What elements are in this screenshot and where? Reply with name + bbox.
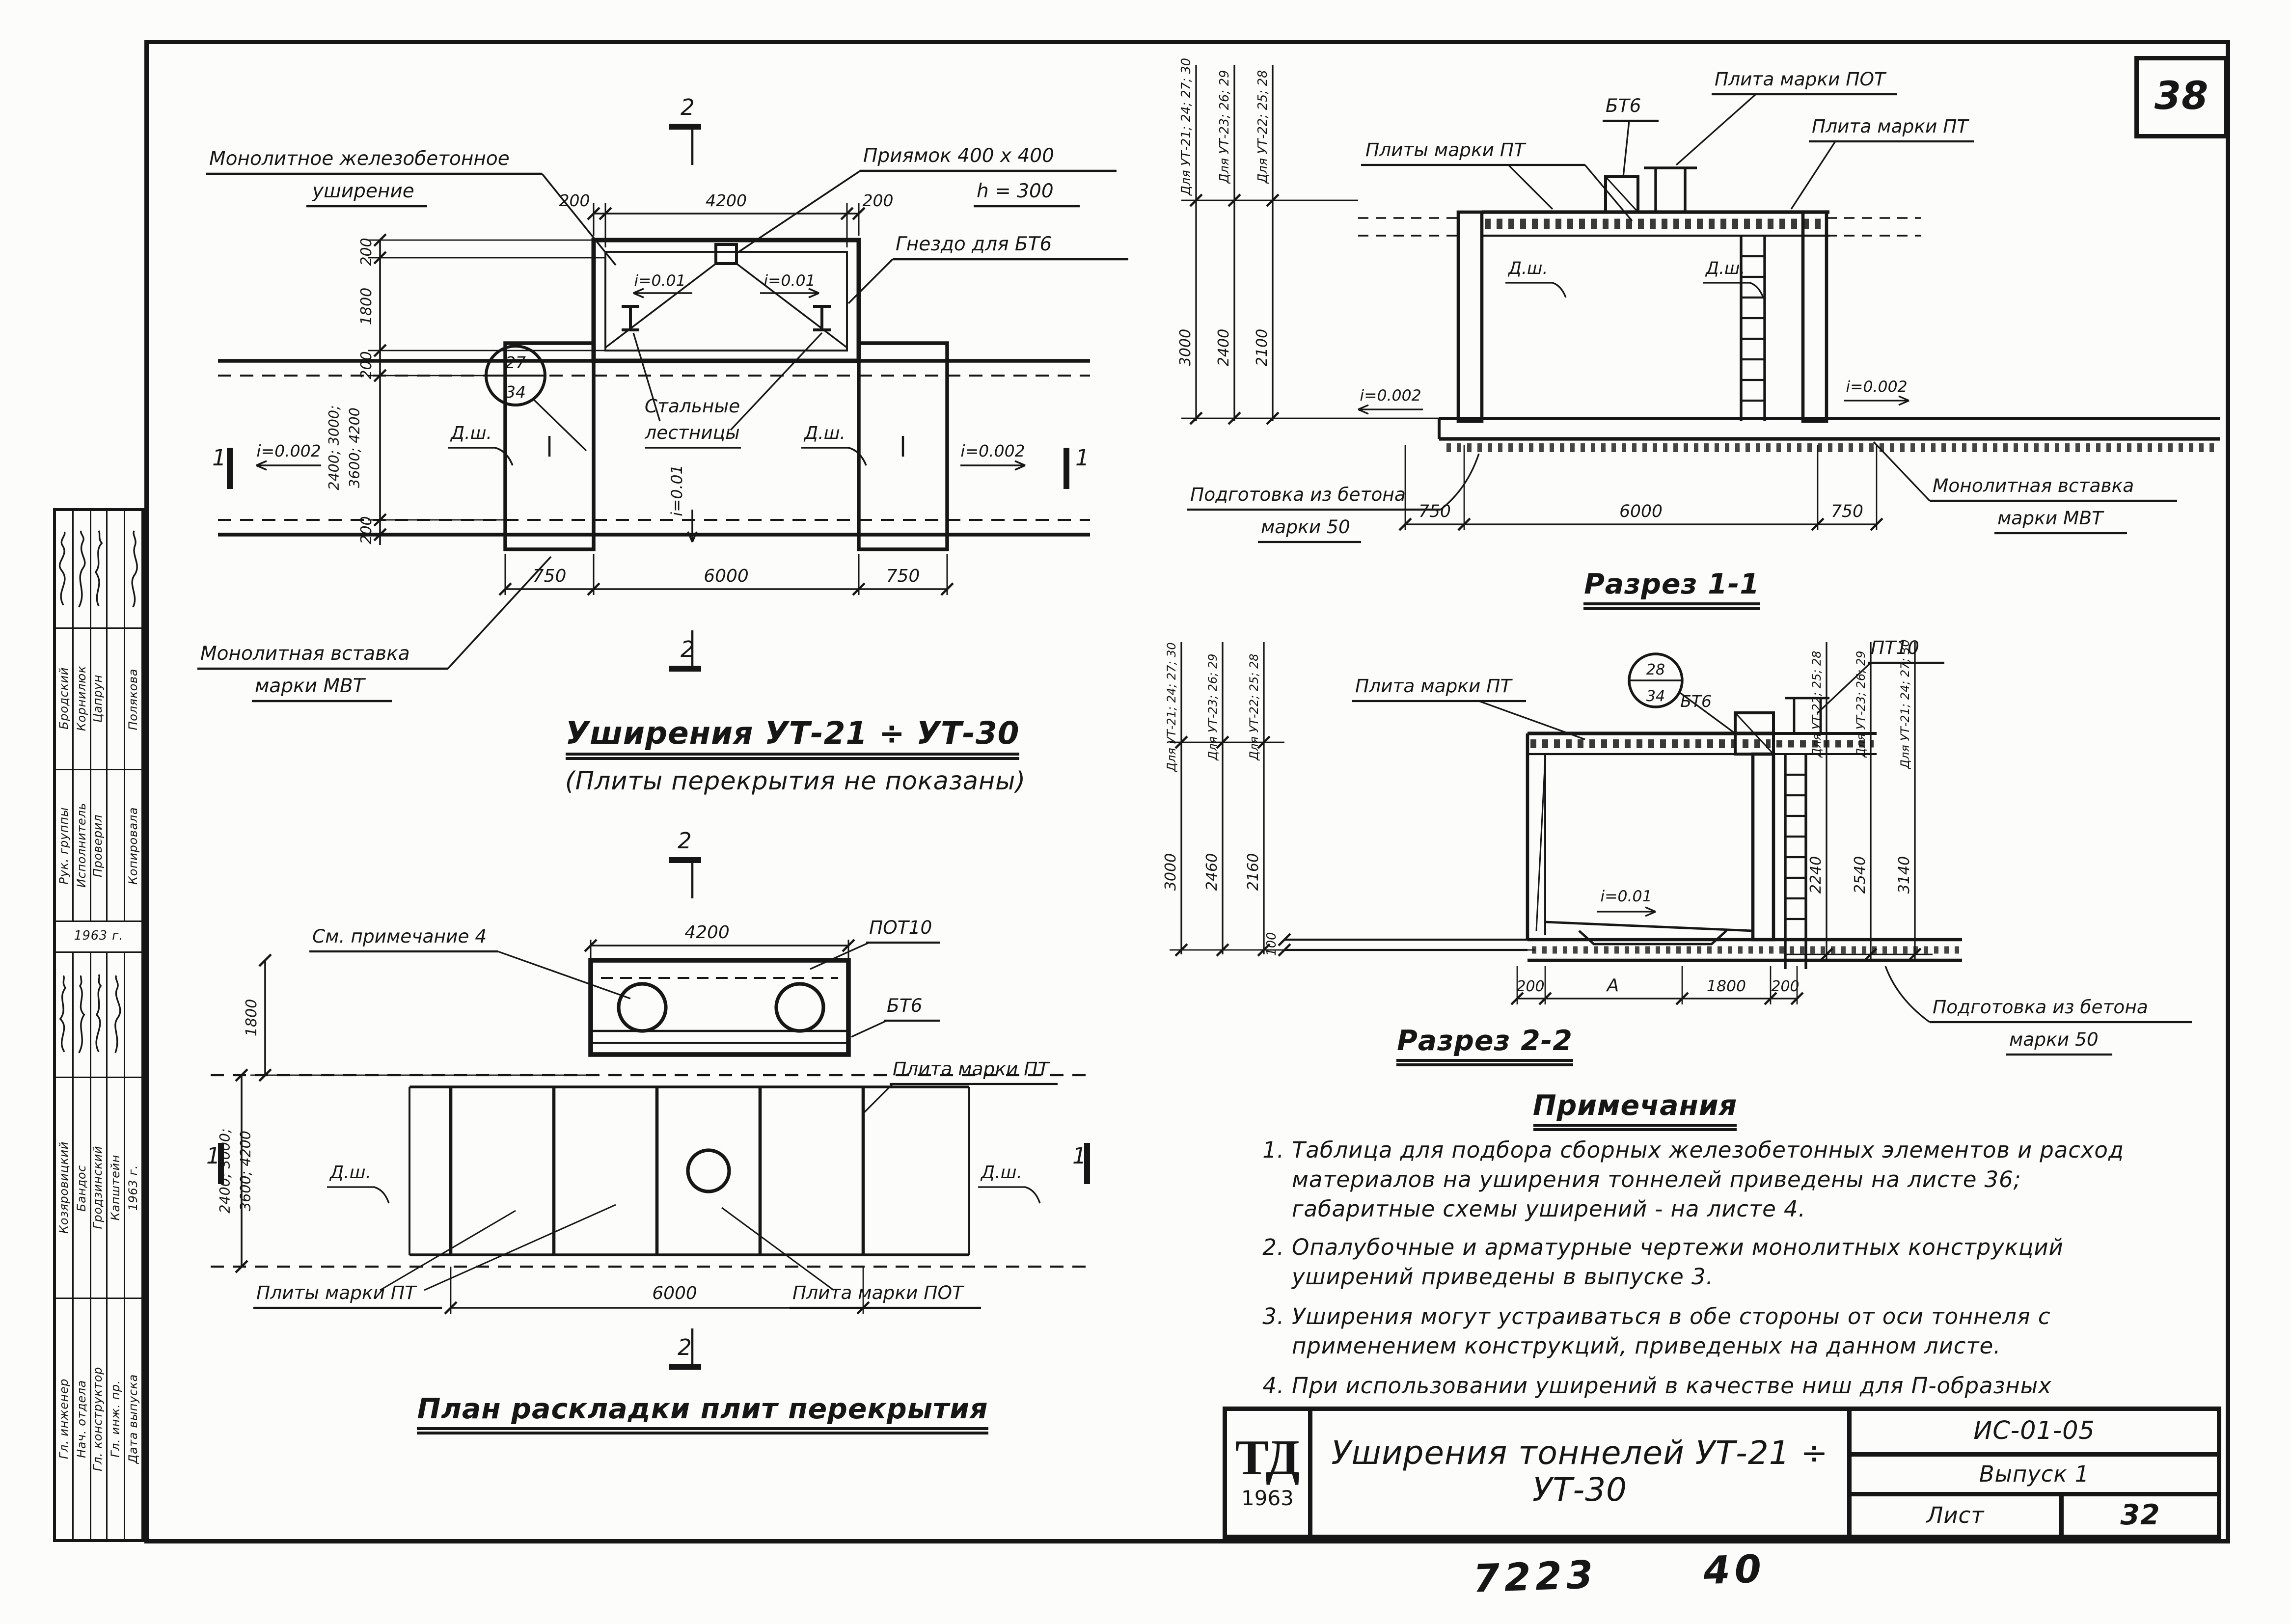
dim-1800: 1800 <box>243 999 260 1036</box>
slope-label: i=0.01 <box>764 272 815 290</box>
dim-left: 200 <box>358 351 375 379</box>
titleblock-title: Уширения тоннелей УТ-21 ÷ УТ-30 <box>1312 1411 1852 1535</box>
detail-circle-bottom: 34 <box>1646 688 1665 705</box>
dim-A: А <box>1606 975 1619 996</box>
label-plita-pt: Плита марки ПТ <box>893 1058 1050 1080</box>
dim-height: 2460 <box>1203 853 1221 891</box>
section-mark-2: 2 <box>678 828 692 854</box>
type-label: Для УТ-22; 25; 28 <box>1255 70 1270 184</box>
dim-height: 3000 <box>1177 329 1194 366</box>
titleblock-issue: Выпуск 1 <box>1852 1457 2217 1496</box>
label-monolithic-widening-1: Монолитное железобетонное <box>209 148 510 170</box>
dim-200: 200 <box>1516 978 1544 995</box>
stamp-sidebar: Бродский Рук. группы Корнилюк Исполнител… <box>53 508 144 1542</box>
logo-year: 1963 <box>1241 1488 1294 1511</box>
dim-1800: 1800 <box>1707 977 1746 995</box>
label-podgotovka-2: марки 50 <box>2009 1029 2099 1050</box>
label-dsh: Д.ш. <box>1705 259 1745 278</box>
stamp-role: Рук. группы <box>57 807 71 884</box>
label-ladders-1: Стальные <box>645 395 740 417</box>
dim-100: 100 <box>1264 932 1279 956</box>
stamp-name: Гродзинский <box>92 1146 105 1229</box>
type-label: Для УТ-21; 24; 27; 30 <box>1165 642 1178 772</box>
section-mark-2: 2 <box>681 94 695 120</box>
plan-title: Уширения УТ-21 ÷ УТ-30 <box>566 716 1020 760</box>
notes-heading: Примечания <box>1533 1090 1737 1131</box>
label-dsh: Д.ш. <box>450 423 492 443</box>
dim-height: 3140 <box>1896 856 1913 893</box>
stamp-role: Проверил <box>92 814 105 877</box>
stamp-role: Копировала <box>127 807 140 884</box>
section-mark-2: 2 <box>681 636 695 662</box>
slab-plan-title: План раскладки плит перекрытия <box>417 1393 988 1435</box>
label-insert-2: марки МВТ <box>1997 507 2104 529</box>
dim-height: 2100 <box>1254 329 1271 366</box>
label-pt10: ПТ10 <box>1871 637 1919 658</box>
type-label: Для УТ-23; 26; 29 <box>1206 653 1220 760</box>
handwritten-numbers: 7223 40 <box>1473 1541 1975 1602</box>
titleblock-right: ИС-01-05 Выпуск 1 Лист 32 <box>1852 1411 2217 1535</box>
slope-label: i=0.01 <box>634 272 685 290</box>
note-number: 2. <box>1255 1235 1284 1293</box>
slab-plan-drawing: 2 4200 См. примечание 4 ПОТ10 БТ6 Плита … <box>174 825 1134 1432</box>
handwritten-code: 7223 <box>1473 1554 1598 1602</box>
section-1-1-title: Разрез 1-1 <box>1584 568 1760 610</box>
dim-4200: 4200 <box>684 922 730 943</box>
label-dsh: Д.ш. <box>803 423 845 443</box>
stamp-role: Исполнитель <box>75 803 88 888</box>
dim-4200: 4200 <box>706 191 747 210</box>
dim-6000: 6000 <box>1619 502 1663 521</box>
stamp-col: 1963 г. Дата выпуска <box>126 953 141 1539</box>
detail-circle-bottom: 34 <box>505 382 526 402</box>
label-podgotovka-2: марки 50 <box>1261 516 1350 538</box>
slope-axis-label: i=0.01 <box>668 464 686 516</box>
label-podgotovka-1: Подготовка из бетона <box>1190 484 1406 505</box>
dim-6000: 6000 <box>704 566 749 586</box>
slope-label: i=0.01 <box>1600 888 1652 905</box>
dim-750: 750 <box>1831 502 1863 521</box>
type-label: Для УТ-23; 26; 29 <box>1217 70 1232 184</box>
dim-200: 200 <box>559 191 590 210</box>
stamp-col: Капштейн Гл. инж. пр. <box>108 953 125 1539</box>
section-1-1-drawing: Для УТ-21; 24; 27; 30 Для УТ-23; 26; 29 … <box>1137 53 2227 595</box>
dim-height: 2160 <box>1245 853 1262 891</box>
stamp-role: Гл. инж. пр. <box>109 1380 123 1458</box>
label-dsh: Д.ш. <box>1507 259 1548 278</box>
label-socket-bt6: Гнездо для БТ6 <box>896 233 1052 255</box>
titleblock-sheet-label: Лист <box>1852 1496 2064 1535</box>
slope-label: i=0.002 <box>1846 378 1907 396</box>
note-number: 3. <box>1255 1303 1284 1362</box>
drawing-sheet: 38 Бродский Рук. группы Корнилюк Исполни… <box>0 0 2291 1624</box>
notes-list: 1. Таблица для подбора сборных железобет… <box>1255 1137 2151 1441</box>
titleblock-code: ИС-01-05 <box>1852 1411 2217 1457</box>
note-number: 1. <box>1255 1137 1284 1224</box>
dim-200: 200 <box>863 191 894 210</box>
dim-left-widths-1: 2400; 3000; <box>326 405 342 490</box>
section-mark-1: 1 <box>1072 1143 1087 1169</box>
note-text: Опалубочные и арматурные чертежи монолит… <box>1292 1235 2151 1293</box>
dim-200: 200 <box>1771 978 1799 995</box>
label-insert-1: Монолитная вставка <box>200 643 410 665</box>
dim-height: 2400 <box>1215 329 1232 366</box>
label-dsh: Д.ш. <box>980 1163 1022 1183</box>
label-pit: Приямок 400 х 400 <box>863 145 1054 167</box>
label-pot10: ПОТ10 <box>869 917 932 938</box>
plan-view-drawing: 2 Монолитное железобетонное уширение 200… <box>174 71 1134 751</box>
dim-left: 200 <box>358 516 375 544</box>
stamp-group-b: Козяровицкий Гл. инженер Бандос Нач. отд… <box>56 953 141 1539</box>
signature-squiggle <box>123 518 144 621</box>
stamp-year: 1963 г. <box>56 920 141 953</box>
stamp-role: Нач. отдела <box>75 1380 88 1458</box>
label-insert-2: марки МВТ <box>255 675 366 697</box>
stamp-name: Полякова <box>127 668 140 730</box>
note-text: Таблица для подбора сборных железобетонн… <box>1292 1137 2151 1224</box>
signature-squiggle <box>88 518 109 621</box>
section-mark-1: 1 <box>1075 445 1090 471</box>
dim-750: 750 <box>533 566 567 586</box>
plan-subtitle: (Плиты перекрытия не показаны) <box>486 767 1105 797</box>
slope-label: i=0.002 <box>256 441 321 460</box>
type-label: Для УТ-22; 25; 28 <box>1247 653 1261 760</box>
dim-750: 750 <box>886 566 920 586</box>
dim-left-widths-2: 3600; 4200 <box>347 407 363 488</box>
titleblock-sheet-number: 32 <box>2064 1496 2217 1535</box>
stamp-role: Гл. инженер <box>57 1379 71 1460</box>
section11-geometry <box>1181 65 2220 542</box>
stamp-name: Корнилюк <box>75 666 88 731</box>
stamp-name: Бродский <box>57 668 71 730</box>
label-plity-pt: Плиты марки ПТ <box>1365 139 1527 161</box>
section-2-2-title: Разрез 2-2 <box>1397 1025 1573 1066</box>
note-item: 3. Уширения могут устраиваться в обе сто… <box>1255 1303 2151 1362</box>
label-bt6: БТ6 <box>887 995 922 1016</box>
label-dsh: Д.ш. <box>329 1163 371 1183</box>
dim-6000: 6000 <box>652 1283 697 1303</box>
stamp-name: Бандос <box>75 1164 88 1211</box>
title-block: ТД 1963 Уширения тоннелей УТ-21 ÷ УТ-30 … <box>1223 1407 2221 1539</box>
stamp-date-value: 1963 г. <box>127 1165 140 1211</box>
stamp-name: Капштейн <box>109 1155 123 1220</box>
stamp-role: Дата выпуска <box>127 1374 140 1463</box>
stamp-name: Цапрун <box>92 675 105 723</box>
slope-label: i=0.002 <box>1360 387 1421 405</box>
label-ladders-2: лестницы <box>644 422 740 443</box>
label-plita-pot: Плита марки ПОТ <box>1715 68 1887 90</box>
stamp-name: Козяровицкий <box>57 1142 71 1234</box>
note-item: 1. Таблица для подбора сборных железобет… <box>1255 1137 2151 1224</box>
label-pit-height: h = 300 <box>977 180 1054 202</box>
label-plity-pt: Плиты марки ПТ <box>256 1282 417 1303</box>
label-see-note: См. примечание 4 <box>312 925 487 947</box>
note-text: Уширения могут устраиваться в обе сторон… <box>1292 1303 2151 1362</box>
logo-cell: ТД 1963 <box>1227 1411 1312 1535</box>
stamp-col: Полякова Копировала <box>126 511 141 920</box>
section-mark-1: 1 <box>212 445 226 471</box>
stamp-group-a: Бродский Рук. группы Корнилюк Исполнител… <box>56 511 141 920</box>
signature-squiggle <box>106 960 126 1069</box>
section-2-2-drawing: Для УТ-21; 24; 27; 30 Для УТ-23; 26; 29 … <box>1137 619 2227 1083</box>
dim-left: 200 <box>358 238 375 266</box>
slope-label: i=0.002 <box>960 441 1025 460</box>
detail-circle-top: 27 <box>505 353 526 372</box>
note-item: 2. Опалубочные и арматурные чертежи моно… <box>1255 1235 2151 1293</box>
logo-td: ТД <box>1235 1435 1300 1485</box>
label-plita-pt: Плита марки ПТ <box>1355 675 1513 697</box>
stamp-col: Цапрун Проверил <box>91 511 108 920</box>
section-mark-2: 2 <box>678 1334 692 1360</box>
dim-height: 2240 <box>1807 856 1825 893</box>
label-bt6: БТ6 <box>1680 692 1712 711</box>
label-monolithic-widening-2: уширение <box>312 180 414 202</box>
dim-widths-2: 3600; 4200 <box>238 1131 254 1211</box>
type-label: Для УТ-23; 26; 29 <box>1854 650 1868 758</box>
section-mark-1: 1 <box>206 1143 220 1169</box>
label-plita-pt: Плита марки ПТ <box>1812 115 1969 137</box>
dim-left: 1800 <box>358 288 375 325</box>
stamp-role: Гл. конструктор <box>92 1367 105 1471</box>
type-label: Для УТ-21; 24; 27; 30 <box>1898 639 1912 769</box>
label-plita-pot: Плита марки ПОТ <box>792 1282 965 1303</box>
label-podgotovka-1: Подготовка из бетона <box>1933 996 2148 1018</box>
detail-circle-top: 28 <box>1646 661 1665 678</box>
dim-750: 750 <box>1418 502 1451 521</box>
handwritten-number: 40 <box>1703 1548 1767 1594</box>
type-label: Для УТ-22; 25; 28 <box>1810 650 1824 758</box>
type-label: Для УТ-21; 24; 27; 30 <box>1179 58 1194 196</box>
label-insert-1: Монолитная вставка <box>1933 475 2134 496</box>
dim-height: 2540 <box>1852 856 1869 893</box>
dim-height: 3000 <box>1162 853 1179 891</box>
label-bt6: БТ6 <box>1606 95 1641 116</box>
dim-widths-1: 2400; 3000; <box>217 1128 233 1213</box>
